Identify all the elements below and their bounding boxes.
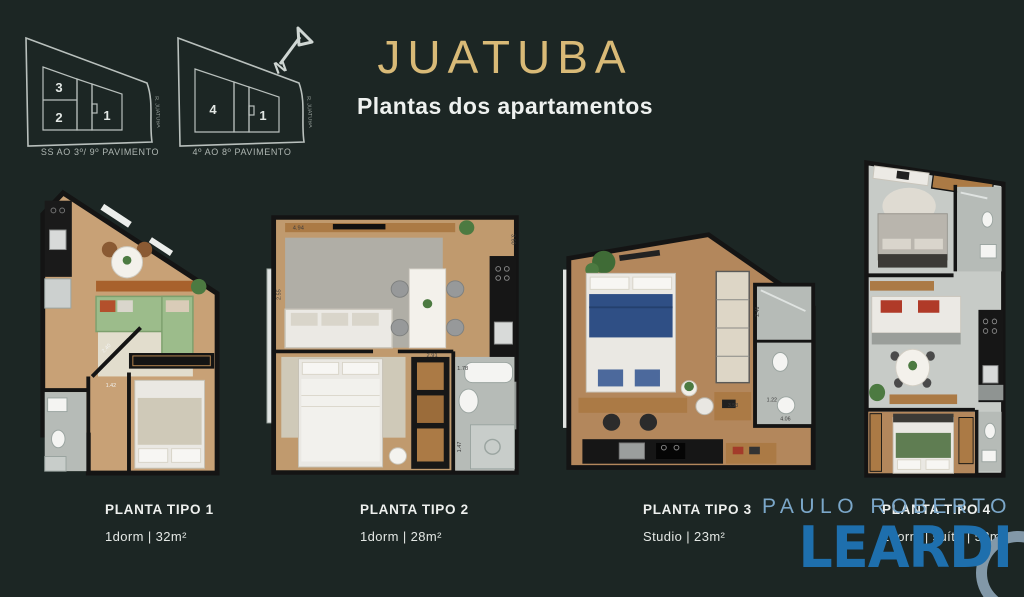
measurement-label: 3.60 (510, 234, 516, 245)
plan-caption-1: PLANTA TIPO 1 1dorm | 32m² (105, 502, 214, 544)
unit-number: 4 (209, 102, 217, 117)
kitchen (45, 201, 72, 308)
plan-details: Studio | 23m² (643, 529, 752, 544)
keyplan-floors-ss-3-9: 3 2 1 R. JUATUBA (10, 26, 160, 148)
plant (459, 220, 474, 235)
plan-details: 1dorm | 28m² (360, 529, 469, 544)
keyplan-unit-numbers: 3 2 1 (55, 80, 110, 125)
plan-details: 1dorm | 32m² (105, 529, 214, 544)
sofa (285, 309, 392, 348)
bathroom (455, 357, 514, 471)
wardrobe (411, 357, 449, 469)
unit-number: 1 (103, 108, 110, 123)
bathroom (755, 285, 813, 426)
bathroom-bottom (978, 412, 1001, 472)
plant-pot (681, 381, 697, 396)
measurement-label: 2.55 (276, 289, 282, 300)
bathroom-top (957, 187, 1001, 272)
bed (586, 273, 675, 392)
measurement-label: 3.53 (728, 403, 738, 409)
juatuba-floorplans-page: 3 2 1 R. JUATUBA SS AO 3º/ 9º PAVIMENTO … (0, 0, 1024, 597)
measurement-label: 1.78 (457, 366, 468, 372)
leardi-watermark: PAULO ROBERTO LEARDI (762, 496, 1012, 574)
kitchen (978, 310, 1003, 402)
bed (135, 380, 205, 468)
plan-caption-2: PLANTA TIPO 2 1dorm | 28m² (360, 502, 469, 544)
plan-name: PLANTA TIPO 3 (643, 502, 752, 517)
unit-number: 2 (55, 110, 62, 125)
page-title: JUATUBA (340, 30, 670, 84)
unit-number: 1 (259, 108, 266, 123)
floorplan-tipo-3: 2.46 1.22 3.53 4.06 (563, 230, 820, 475)
keyplan-caption: 4º AO 8º PAVIMENTO (172, 147, 312, 157)
closet (716, 271, 749, 382)
measurement-label: 2.46 (755, 307, 761, 317)
plant (191, 279, 206, 295)
keyplan-caption: SS AO 3º/ 9º PAVIMENTO (20, 147, 180, 157)
leardi-logo: LEARDI (762, 520, 1012, 577)
bathroom (45, 392, 87, 471)
bed (298, 359, 382, 467)
floorplan-tipo-4 (854, 158, 1014, 480)
measurement-label: 2.91 (427, 353, 438, 359)
measurement-label: 1.42 (106, 383, 116, 389)
plan-name: PLANTA TIPO 1 (105, 502, 214, 517)
street-label: R. JUATUBA (153, 96, 160, 128)
unit-number: 3 (55, 80, 62, 95)
floorplan-tipo-1: 2.40 1.42 (36, 189, 220, 477)
keyplan-unit-numbers: 4 1 (209, 102, 266, 123)
measurement-label: 4.06 (780, 416, 790, 422)
north-letter: N (272, 56, 289, 74)
floorplan-tipo-2: 4.94 3.60 2.55 2.91 1.78 1.47 (266, 212, 524, 478)
measurement-label: 1.22 (767, 398, 777, 404)
bedroom-bottom (868, 412, 975, 474)
sideboard (96, 281, 195, 292)
measurement-label: 1.47 (457, 442, 463, 453)
pouf (389, 448, 406, 465)
north-arrow-icon: N (272, 20, 318, 74)
plan-name: PLANTA TIPO 2 (360, 502, 469, 517)
wardrobe (129, 353, 214, 369)
measurement-label: 4.94 (293, 226, 304, 232)
title-block: JUATUBA Plantas dos apartamentos (340, 30, 670, 120)
plan-caption-3: PLANTA TIPO 3 Studio | 23m² (643, 502, 752, 544)
street-label: R. JUATUBA (305, 96, 312, 128)
page-subtitle: Plantas dos apartamentos (340, 93, 670, 120)
